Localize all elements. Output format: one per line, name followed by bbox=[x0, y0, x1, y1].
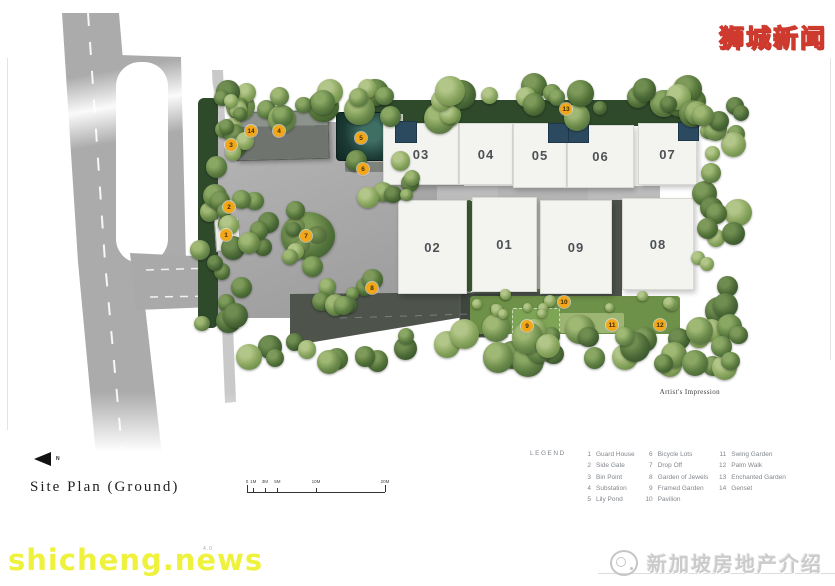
building-label: 02 bbox=[424, 240, 440, 255]
building-label: 09 bbox=[568, 240, 584, 255]
legend-column: 6Bicycle Lots7Drop Off8Garden of Jewels9… bbox=[644, 449, 709, 505]
legend-item-number: 13 bbox=[717, 472, 726, 483]
plan-marker-6: 6 bbox=[357, 163, 369, 175]
legend-column: 11Swing Garden12Palm Walk13Enchanted Gar… bbox=[717, 449, 786, 505]
legend-item-number: 11 bbox=[717, 449, 726, 460]
scale-label: 3M bbox=[262, 479, 268, 484]
legend-item-6: 6Bicycle Lots bbox=[644, 449, 709, 460]
plan-marker-12: 12 bbox=[654, 319, 666, 331]
watermark-sg-property: 新加坡房地产介绍 bbox=[610, 548, 823, 577]
tree bbox=[223, 303, 249, 329]
tree bbox=[584, 347, 605, 368]
tree bbox=[400, 189, 413, 202]
legend: LEGEND 1Guard House2Side Gate3Bin Point4… bbox=[530, 449, 795, 505]
page-title: Site Plan (Ground) bbox=[30, 479, 179, 496]
wechat-logo-icon bbox=[610, 550, 638, 576]
legend-item-8: 8Garden of Jewels bbox=[644, 472, 709, 483]
legend-item-number: 2 bbox=[582, 460, 591, 471]
tree bbox=[498, 309, 508, 319]
tree bbox=[663, 297, 676, 310]
tree bbox=[536, 334, 560, 358]
legend-item-label: Bin Point bbox=[596, 472, 622, 483]
plan-marker-14: 14 bbox=[245, 125, 257, 137]
scale-label: 1M bbox=[250, 479, 256, 484]
north-arrow: N bbox=[34, 452, 60, 466]
legend-item-number: 6 bbox=[644, 449, 653, 460]
plan-marker-4: 4 bbox=[273, 125, 285, 137]
scale-label: 10M bbox=[312, 479, 321, 484]
scale-label: 0 bbox=[246, 479, 249, 484]
legend-item-7: 7Drop Off bbox=[644, 460, 709, 471]
legend-item-label: Palm Walk bbox=[731, 460, 762, 471]
plan-marker-7: 7 bbox=[300, 230, 312, 242]
scale-bar: 01M3M5M10M20M bbox=[247, 478, 385, 493]
tree bbox=[567, 80, 594, 107]
tree bbox=[298, 340, 317, 359]
building-09: 09 bbox=[540, 200, 612, 294]
legend-item-label: Enchanted Garden bbox=[731, 472, 786, 483]
building-04: 04 bbox=[459, 123, 513, 185]
legend-item-number: 4 bbox=[582, 483, 591, 494]
tree bbox=[233, 107, 247, 121]
watermark-shicheng-cn: 狮城新闻 bbox=[719, 19, 827, 55]
tree bbox=[450, 319, 480, 349]
plan-marker-10: 10 bbox=[558, 296, 570, 308]
legend-item-number: 1 bbox=[582, 449, 591, 460]
tree bbox=[435, 76, 465, 106]
tree bbox=[697, 218, 718, 239]
tree bbox=[219, 119, 235, 135]
tree bbox=[194, 316, 210, 332]
plan-marker-2: 2 bbox=[223, 201, 235, 213]
legend-item-number: 10 bbox=[644, 494, 653, 505]
building-label: 04 bbox=[478, 147, 494, 162]
tree bbox=[605, 303, 614, 312]
tree bbox=[206, 156, 228, 178]
legend-item-1: 1Guard House bbox=[582, 449, 635, 460]
page-number: 4.0 bbox=[203, 546, 213, 552]
tree bbox=[380, 106, 401, 127]
scale-tick bbox=[316, 488, 317, 492]
north-arrow-icon bbox=[34, 452, 51, 466]
building-02: 02 bbox=[398, 200, 467, 294]
legend-item-4: 4Substation bbox=[582, 483, 635, 494]
tree bbox=[721, 352, 740, 371]
tree bbox=[633, 78, 656, 101]
legend-item-number: 7 bbox=[644, 460, 653, 471]
scale-tick bbox=[247, 485, 248, 492]
legend-item-9: 9Framed Garden bbox=[644, 483, 709, 494]
legend-item-label: Substation bbox=[596, 483, 627, 494]
building-label: 05 bbox=[532, 148, 548, 163]
legend-item-label: Swing Garden bbox=[731, 449, 772, 460]
legend-item-3: 3Bin Point bbox=[582, 472, 635, 483]
plan-marker-13: 13 bbox=[560, 103, 572, 115]
legend-item-14: 14Genset bbox=[717, 483, 786, 494]
building-label: 07 bbox=[659, 147, 675, 162]
tree bbox=[286, 201, 305, 220]
tree bbox=[317, 350, 341, 374]
watermark-sg-property-label: 新加坡房地产介绍 bbox=[647, 548, 823, 577]
building-label: 03 bbox=[413, 147, 429, 162]
building-label: 01 bbox=[496, 237, 512, 252]
legend-item-label: Genset bbox=[731, 483, 752, 494]
tree bbox=[578, 327, 598, 347]
legend-item-number: 3 bbox=[582, 472, 591, 483]
legend-title: LEGEND bbox=[530, 449, 582, 505]
tree bbox=[334, 296, 353, 315]
legend-item-label: Garden of Jewels bbox=[658, 472, 709, 483]
tree bbox=[729, 326, 747, 344]
legend-column: 1Guard House2Side Gate3Bin Point4Substat… bbox=[582, 449, 635, 505]
plan-marker-3: 3 bbox=[225, 139, 237, 151]
legend-item-label: Bicycle Lots bbox=[658, 449, 693, 460]
tree bbox=[311, 90, 335, 114]
tree bbox=[231, 277, 252, 298]
plan-marker-8: 8 bbox=[366, 282, 378, 294]
tree bbox=[701, 163, 721, 183]
tree bbox=[472, 299, 482, 309]
tree bbox=[190, 240, 210, 260]
scale-tick bbox=[265, 488, 266, 492]
north-label: N bbox=[56, 456, 60, 462]
tree bbox=[692, 105, 713, 126]
legend-item-number: 14 bbox=[717, 483, 726, 494]
scale-label: 5M bbox=[274, 479, 280, 484]
tree bbox=[637, 291, 648, 302]
legend-item-label: Pavilion bbox=[658, 494, 681, 505]
tree bbox=[615, 327, 634, 346]
tree bbox=[682, 350, 708, 376]
plan-marker-5: 5 bbox=[355, 132, 367, 144]
scale-tick bbox=[385, 485, 386, 492]
legend-item-label: Guard House bbox=[596, 449, 635, 460]
legend-item-11: 11Swing Garden bbox=[717, 449, 786, 460]
legend-item-13: 13Enchanted Garden bbox=[717, 472, 786, 483]
tree bbox=[654, 354, 673, 373]
tree bbox=[355, 346, 376, 367]
legend-item-label: Side Gate bbox=[596, 460, 625, 471]
legend-item-10: 10Pavilion bbox=[644, 494, 709, 505]
plan-marker-11: 11 bbox=[606, 319, 618, 331]
legend-item-5: 5Lily Pond bbox=[582, 494, 635, 505]
building-08: 08 bbox=[622, 198, 694, 290]
site-plan-page: 030405060702010908 1234567891011121314 A… bbox=[0, 0, 835, 586]
tree bbox=[705, 146, 720, 161]
plan-marker-1: 1 bbox=[220, 229, 232, 241]
artist-impression-note: Artist's Impression bbox=[570, 388, 720, 396]
legend-item-number: 5 bbox=[582, 494, 591, 505]
plan-marker-9: 9 bbox=[521, 320, 533, 332]
legend-item-label: Lily Pond bbox=[596, 494, 623, 505]
legend-item-2: 2Side Gate bbox=[582, 460, 635, 471]
legend-item-number: 8 bbox=[644, 472, 653, 483]
scale-tick bbox=[277, 488, 278, 492]
legend-item-label: Drop Off bbox=[658, 460, 682, 471]
watermark-shicheng-news: shicheng.news bbox=[8, 543, 263, 577]
roof-feature bbox=[395, 121, 417, 143]
tree bbox=[295, 97, 312, 114]
legend-item-number: 12 bbox=[717, 460, 726, 471]
tree bbox=[375, 87, 393, 105]
legend-item-number: 9 bbox=[644, 483, 653, 494]
building-01: 01 bbox=[472, 197, 537, 292]
legend-item-12: 12Palm Walk bbox=[717, 460, 786, 471]
tree bbox=[483, 342, 514, 373]
legend-item-label: Framed Garden bbox=[658, 483, 704, 494]
tree bbox=[224, 94, 238, 108]
building-label: 06 bbox=[592, 149, 608, 164]
tree bbox=[349, 88, 368, 107]
tree bbox=[537, 309, 546, 318]
scale-label: 20M bbox=[381, 479, 390, 484]
scale-tick bbox=[253, 488, 254, 492]
building-label: 08 bbox=[650, 237, 666, 252]
tree bbox=[391, 151, 410, 170]
